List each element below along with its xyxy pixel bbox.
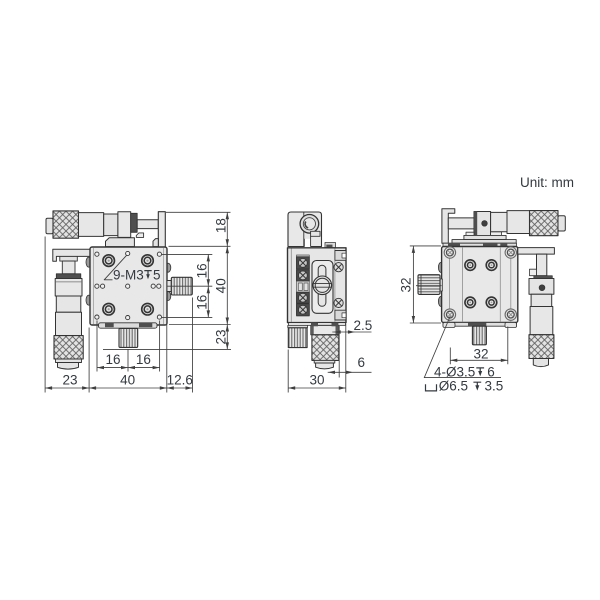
svg-text:9-M3: 9-M3 bbox=[113, 267, 144, 282]
svg-text:4-Ø3.5: 4-Ø3.5 bbox=[434, 364, 475, 379]
svg-text:16: 16 bbox=[195, 263, 210, 278]
svg-text:5: 5 bbox=[153, 267, 161, 282]
svg-text:32: 32 bbox=[473, 347, 488, 362]
svg-text:40: 40 bbox=[120, 373, 135, 388]
svg-text:32: 32 bbox=[399, 277, 414, 292]
svg-text:30: 30 bbox=[309, 373, 324, 388]
svg-text:16: 16 bbox=[195, 295, 210, 310]
svg-text:23: 23 bbox=[62, 373, 77, 388]
svg-text:6: 6 bbox=[358, 355, 366, 370]
svg-text:3.5: 3.5 bbox=[485, 379, 504, 394]
svg-text:16: 16 bbox=[105, 352, 120, 367]
svg-text:Ø6.5: Ø6.5 bbox=[439, 379, 468, 394]
svg-text:2.5: 2.5 bbox=[354, 318, 373, 333]
svg-text:Unit: mm: Unit: mm bbox=[520, 175, 574, 190]
svg-text:16: 16 bbox=[136, 352, 151, 367]
svg-text:12.6: 12.6 bbox=[167, 373, 193, 388]
svg-text:23: 23 bbox=[213, 329, 228, 344]
svg-text:18: 18 bbox=[213, 218, 228, 233]
svg-text:40: 40 bbox=[213, 278, 228, 293]
svg-text:6: 6 bbox=[487, 364, 495, 379]
